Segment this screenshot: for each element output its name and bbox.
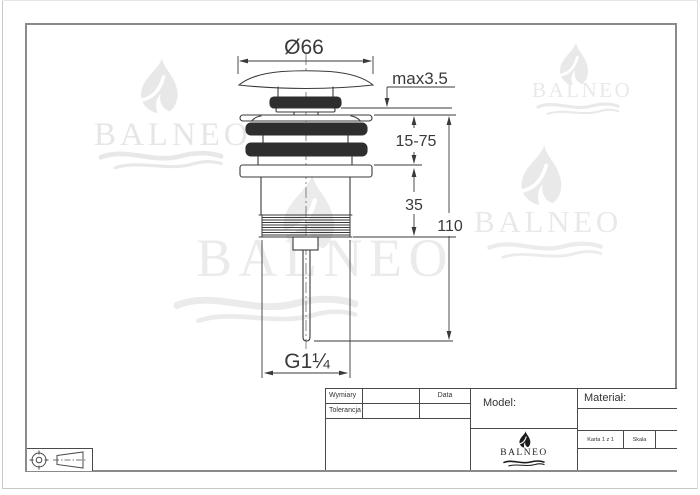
cap-collar — [270, 97, 341, 108]
nut-block — [293, 237, 318, 250]
gasket-lower — [246, 143, 367, 156]
data-value-cell — [420, 404, 470, 418]
material-label: Materiał: — [578, 389, 677, 409]
title-block-right: Materiał: Karta 1 z 1 Skala — [578, 389, 677, 470]
dim-cap-clearance: max3.5 — [392, 69, 448, 88]
gasket-upper — [246, 123, 367, 135]
karta-label: Karta 1 z 1 — [578, 431, 624, 448]
data-label: Data — [420, 389, 470, 403]
footer-empty-cell — [578, 449, 677, 470]
skala-label: Skala — [624, 431, 656, 448]
dim-total-height: 110 — [437, 218, 463, 235]
waves-icon — [502, 459, 546, 468]
balneo-logo: BALNEO — [471, 429, 577, 470]
dim-clamping-range: 15-75 — [396, 133, 437, 150]
collar-lip — [276, 108, 335, 112]
valve-body-group — [239, 71, 373, 341]
title-block-model: Model: BALNEO — [471, 389, 578, 470]
drawing-sheet: { "brand": { "name": "BALNEO" }, "drawin… — [0, 0, 700, 495]
tolerancja-label: Tolerancja — [326, 404, 363, 418]
flame-icon — [518, 431, 531, 448]
cap-dome — [239, 71, 373, 89]
projection-symbol-box — [27, 448, 93, 471]
title-block-left: Wymiary Data Tolerancja — [326, 389, 471, 470]
notes-cell — [326, 419, 470, 470]
title-block: Wymiary Data Tolerancja Model: BALNEO Ma… — [325, 388, 677, 470]
dim-diameter: Ø66 — [284, 36, 324, 59]
wymiary-value-cell — [363, 389, 420, 403]
tolerancja-value-cell — [363, 404, 420, 418]
flange — [240, 165, 372, 177]
dim-body-height: 35 — [405, 197, 423, 214]
thread-section — [259, 215, 352, 237]
model-label: Model: — [471, 389, 577, 429]
dim-thread: G1¼ — [284, 350, 330, 373]
skala-value-cell — [656, 431, 677, 448]
logo-text: BALNEO — [500, 449, 548, 459]
material-value-cell — [578, 409, 677, 431]
first-angle-projection-icon — [27, 449, 92, 471]
wymiary-label: Wymiary — [326, 389, 363, 403]
